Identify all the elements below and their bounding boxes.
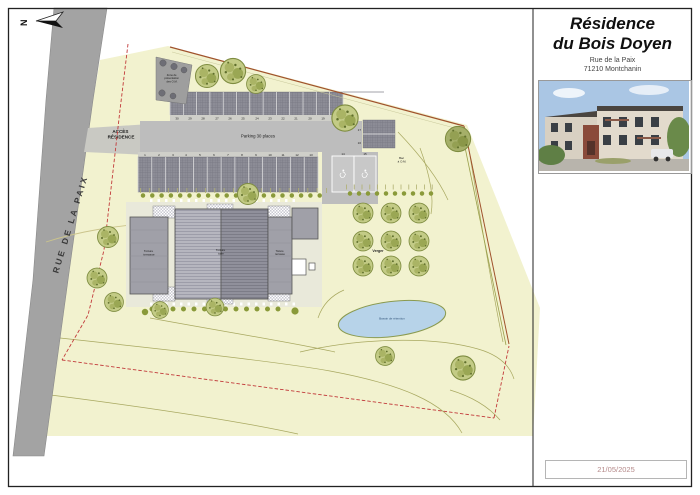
svg-text:23: 23 (268, 116, 272, 120)
svg-text:14: 14 (341, 152, 345, 156)
svg-text:25: 25 (241, 116, 245, 120)
tree (376, 347, 395, 366)
svg-text:30: 30 (175, 116, 179, 120)
svg-text:15: 15 (363, 152, 367, 156)
svg-text:16: 16 (358, 141, 362, 145)
tree (238, 184, 259, 205)
svg-text:11: 11 (281, 153, 284, 157)
orchard-tree (381, 203, 401, 223)
tree (451, 356, 475, 380)
svg-text:19: 19 (321, 116, 325, 120)
site-plan-drawing: RUE DE LA PAIX ACCÈS RÉSIDENCE Parking 3… (0, 0, 700, 495)
tree (220, 58, 245, 83)
tree (195, 64, 218, 87)
orchard-label: Verger (372, 249, 384, 253)
orchard-tree (353, 256, 373, 276)
project-photo (538, 80, 692, 174)
parking-spaces-side: 17 16 (358, 120, 395, 148)
orchard: Verger (353, 203, 429, 276)
tree (206, 298, 224, 316)
orchard-tree (353, 231, 373, 251)
orchard-tree (381, 231, 401, 251)
tree (152, 302, 169, 319)
svg-text:22: 22 (281, 116, 285, 120)
svg-text:27: 27 (215, 116, 219, 120)
date-box: 21/05/2025 (545, 460, 687, 479)
svg-text:28: 28 (201, 116, 205, 120)
orchard-tree (409, 231, 429, 251)
annex-box (292, 259, 306, 275)
terrace-ne (268, 206, 290, 218)
roof-right-label: Toiture terrasse (275, 249, 285, 256)
svg-text:13: 13 (309, 153, 313, 157)
orchard-tree (409, 256, 429, 276)
tree (87, 268, 107, 288)
building: Toiture terrasse Toiture tuile Toiture t… (126, 201, 322, 308)
annex-box-small (309, 263, 315, 270)
tree (98, 227, 119, 248)
roof-center-right (221, 209, 268, 299)
orchard-tree (381, 256, 401, 276)
basin-label: Bassin de rétention (379, 317, 405, 321)
date-value: 21/05/2025 (597, 465, 635, 474)
svg-text:N: N (19, 20, 29, 27)
svg-text:26: 26 (228, 116, 232, 120)
roof-center-left (175, 209, 221, 299)
svg-text:21: 21 (294, 116, 298, 120)
orchard-tree (409, 203, 429, 223)
waste-zone: Zone de présentation des O.M. (156, 57, 192, 104)
svg-text:12: 12 (295, 153, 299, 157)
site-plan-page: RUE DE LA PAIX ACCÈS RÉSIDENCE Parking 3… (0, 0, 700, 495)
svg-text:20: 20 (308, 116, 312, 120)
tree (332, 105, 358, 131)
terrace-nw (153, 206, 175, 218)
parking-count-label: Parking 30 places (241, 134, 275, 139)
tree (247, 75, 266, 94)
roof-left-label: Toiture terrasse (143, 249, 154, 257)
svg-text:29: 29 (188, 116, 192, 120)
parking-row-bottom: 1 2 3 4 5 6 7 8 9 10 11 12 13 (138, 152, 318, 192)
tree (105, 293, 124, 312)
project-title: Résidence du Bois Doyen (533, 14, 692, 53)
svg-text:24: 24 (255, 116, 259, 120)
svg-text:17: 17 (358, 128, 362, 132)
north-arrow-icon: N (19, 12, 63, 28)
project-address: Rue de la Paix 71210 Montchanin (533, 56, 692, 74)
svg-text:10: 10 (268, 153, 272, 157)
building-ne-extension (292, 208, 318, 239)
orchard-tree (353, 203, 373, 223)
